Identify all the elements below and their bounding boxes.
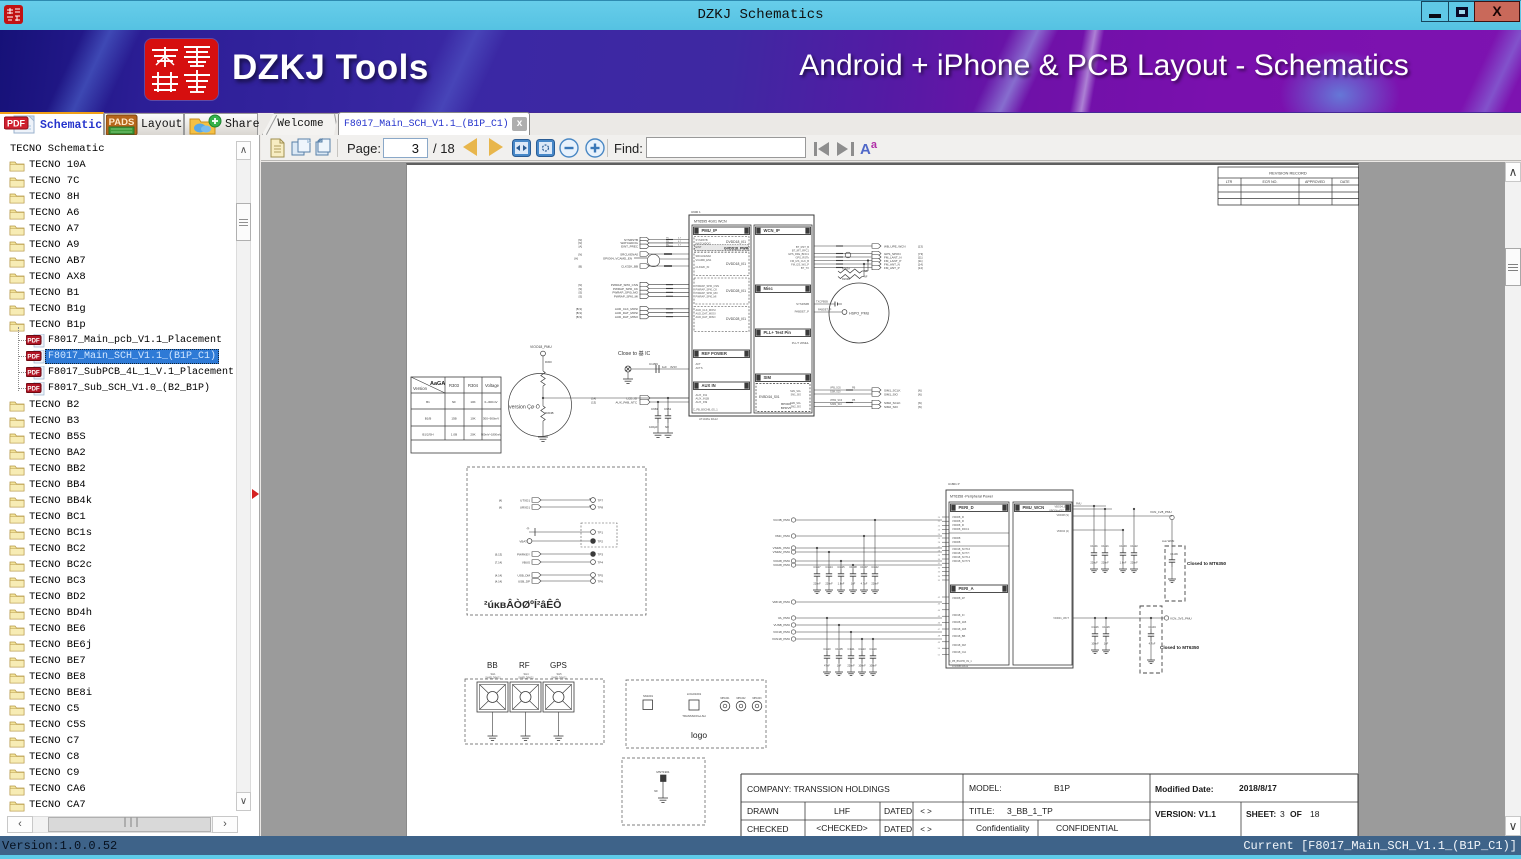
svg-text:2018/8/17: 2018/8/17 [1239,783,1277,793]
svg-text:Close to 基 IC: Close to 基 IC [618,349,651,357]
svg-text:PMU_IP: PMU_IP [702,228,718,233]
svg-text:C1121: C1121 [1101,544,1109,548]
svg-text:VCAMD_EN1: VCAMD_EN1 [696,258,712,262]
svg-text:VPB2_SC6: VPB2_SC6 [830,399,843,402]
svg-text:AUD_DAT_MISO: AUD_DAT_MISO [696,315,716,319]
svg-text:PADS: PADS [109,117,135,128]
svg-text:PDF: PDF [27,354,40,361]
svg-text:DATED: DATED [884,806,912,816]
svg-text:CLK32K_BB: CLK32K_BB [621,264,638,268]
svg-text:DVDD28_I01: DVDD28_I01 [726,289,746,293]
svg-text:900mV~1800mV: 900mV~1800mV [481,433,501,437]
svg-text:300~900mV: 300~900mV [483,417,499,421]
svg-text:[N]: [N] [918,405,922,409]
svg-text:CLK32K_IN: CLK32K_IN [696,265,710,269]
svg-text:version Çø·Ö: version Çø·Ö [509,404,540,411]
svg-text:50: 50 [938,648,941,650]
svg-text:VUSB_PMU: VUSB_PMU [773,623,790,627]
svg-text:C1105: C1105 [835,647,843,651]
svg-text:PERI_A: PERI_A [959,586,974,591]
svg-text:SM2_SIO: SM2_SIO [791,406,802,409]
svg-text:VCOB_PMU: VCOB_PMU [773,518,790,522]
svg-text:C1111: C1111 [847,647,855,651]
svg-text:30: 30 [938,559,941,561]
svg-text:DRAWN: DRAWN [747,806,779,816]
svg-text:B1P: B1P [1054,783,1070,793]
svg-text:SM1_SIO: SM1_SIO [791,394,802,397]
svg-text:R303: R303 [449,383,460,388]
svg-text:R263B: R263B [842,277,850,281]
svg-text:PB: PB [852,387,856,390]
svg-text:HSPO_PMU: HSPO_PMU [849,312,870,316]
svg-text:AUX IN: AUX IN [702,383,716,388]
svg-text:18: 18 [1310,809,1320,819]
svg-text:TP6: TP6 [598,579,604,583]
svg-text:Closed to MT6350: Closed to MT6350 [1160,645,1200,650]
svg-text:VPB_SC6: VPB_SC6 [830,387,841,390]
svg-text:TP3: TP3 [598,552,604,556]
svg-text:VDD08: VDD08 [952,536,961,540]
svg-text:AUD_CLK_MOSI: AUD_CLK_MOSI [696,308,716,312]
svg-text:DVDD18_I01: DVDD18_I01 [726,240,746,244]
svg-text:[7,14]: [7,14] [495,560,502,564]
svg-text:R304: R304 [468,383,479,388]
svg-text:APPROVED: APPROVED [1305,180,1325,184]
svg-text:PU: PU [666,238,669,240]
svg-text:NF: NF [665,425,669,429]
svg-text:VDD08: VDD08 [952,540,961,544]
svg-text:COMPANY: TRANSSION HOLDINGS: COMPANY: TRANSSION HOLDINGS [747,784,890,794]
svg-text:MP1003: MP1003 [753,697,763,700]
svg-text:MP1002: MP1002 [737,697,747,700]
svg-text:R300: R300 [545,360,552,364]
svg-text:VSIM2_PMU: VSIM2_PMU [773,550,790,554]
svg-text:PDF: PDF [27,386,40,393]
svg-text:GPIO04_VCAMD_EN: GPIO04_VCAMD_EN [603,256,632,260]
svg-text:VCN_3V3_PMU: VCN_3V3_PMU [1170,617,1192,621]
svg-text:[4,14]: [4,14] [495,573,502,577]
svg-text:GPS_RFE_BFIC1: GPS_RFE_BFIC1 [788,252,809,256]
svg-text:PWRKEY: PWRKEY [517,552,530,556]
svg-text:4.7uF: 4.7uF [1149,642,1156,646]
svg-text:MT6358 -Peripheral Power: MT6358 -Peripheral Power [950,495,994,499]
svg-text:VIOO18_PMU: VIOO18_PMU [530,345,552,349]
svg-text:28: 28 [938,551,941,553]
svg-text:VDD18_SOT14: VDD18_SOT14 [952,555,971,559]
svg-text:PERI_D: PERI_D [959,505,974,510]
svg-text:C_PB_BSCHB_0S_1: C_PB_BSCHB_0S_1 [949,660,972,663]
svg-text:B1: B1 [426,400,430,404]
svg-text:UTXD1: UTXD1 [520,498,530,502]
svg-text:[B]: [B] [579,264,583,268]
svg-text:0~300mV: 0~300mV [485,400,498,404]
svg-text:TP4: TP4 [598,560,604,564]
svg-text:VDD08_2P: VDD08_2P [952,596,965,600]
svg-text:32: 32 [938,567,941,569]
svg-text:PWRAP_SPI0_CK: PWRAP_SPI0_CK [696,288,718,292]
svg-text:TP7: TP7 [598,498,604,502]
svg-text:ECR NO.: ECR NO. [1263,180,1278,184]
svg-text:FM_I2S_WS_P: FM_I2S_WS_P [791,263,809,267]
svg-text:DATED: DATED [884,824,912,834]
svg-text:VBG04+X5Z_W5: VBG04+X5Z_W5 [1049,509,1070,513]
svg-text:C981: C981 [651,407,659,411]
svg-text:PWRAP_SPI0_MI: PWRAP_SPI0_MI [614,295,638,299]
svg-text:DATE: DATE [1340,180,1350,184]
svg-text:48: 48 [938,635,941,637]
svg-text:C1122: C1122 [1130,544,1138,548]
svg-text:46: 46 [938,623,941,625]
svg-text:VCN_1V8_PMU: VCN_1V8_PMU [1150,510,1172,514]
svg-text:REVISION RECORD: REVISION RECORD [1269,171,1307,176]
svg-text:Aux WCN: Aux WCN [1162,539,1174,543]
svg-text:VDD08_I6: VDD08_I6 [952,519,965,523]
svg-text:C1116: C1116 [1091,625,1099,629]
svg-text:20: 20 [938,517,941,519]
svg-text:REF POWER: REF POWER [702,351,727,356]
svg-text:[6,13]: [6,13] [495,552,502,556]
svg-text:15B: 15B [451,417,456,421]
svg-text:C1113: C1113 [858,647,866,651]
svg-text:SIM2_SIO: SIM2_SIO [884,405,899,409]
svg-text:WATCHDOG: WATCHDOG [696,242,711,246]
svg-text:SYSRSTB: SYSRSTB [696,238,708,242]
svg-text:44: 44 [938,610,941,612]
svg-text:VBUS: VBUS [522,560,530,564]
svg-text:MODEL:: MODEL: [969,783,1002,793]
svg-text:C1107: C1107 [860,565,868,569]
svg-text:AT1046s RA12: AT1046s RA12 [952,665,969,668]
svg-text:SH1: SH1 [490,672,496,676]
svg-text:26: 26 [938,542,941,544]
svg-text:TP1: TP1 [598,530,604,534]
svg-text:Closed to MT6350: Closed to MT6350 [1187,561,1227,566]
svg-text:VDD18_11B: VDD18_11B [952,627,966,631]
svg-text:R263A: R263A [842,267,850,271]
svg-text:PLL/T 26MHL: PLL/T 26MHL [792,341,810,345]
svg-text:EVBDI16_S01: EVBDI16_S01 [759,395,780,399]
svg-text:EINT: EINT [696,245,702,249]
svg-text:VDD01_WCT: VDD01_WCT [1053,616,1069,620]
svg-text:[13]: [13] [591,400,596,404]
svg-text:DVDD28_I01: DVDD28_I01 [726,317,746,321]
svg-text:SHIELDING1: SHIELDING1 [551,676,567,680]
svg-text:RF: RF [519,661,530,670]
svg-text:VDD08_I6: VDD08_I6 [952,515,965,519]
svg-text:GVDD18_PWR: GVDD18_PWR [724,246,749,250]
svg-text:Version: Version [413,386,428,391]
svg-text:MNT1901: MNT1901 [656,770,670,774]
svg-text:VDD18_DM: VDD18_DM [952,643,966,647]
svg-text:C1112: C1112 [871,565,879,569]
svg-text:VIO18_PMU: VIO18_PMU [773,630,790,634]
svg-text:U900 1: U900 1 [691,210,701,214]
svg-text:29: 29 [938,555,941,557]
svg-text:VDD08 (S): VDD08 (S) [1056,513,1069,517]
svg-text:USB_DM: USB_DM [517,573,530,577]
svg-text:10K: 10K [470,400,475,404]
svg-text:3: 3 [1280,809,1285,819]
svg-text:Confidentiality: Confidentiality [976,823,1030,833]
svg-text:3_BB_1_TP: 3_BB_1_TP [1007,806,1053,816]
svg-text:NF: NF [864,275,868,279]
svg-text:VRF18_PMU: VRF18_PMU [772,600,790,604]
svg-text:TITLE:: TITLE: [969,806,995,816]
svg-text:[4,14]: [4,14] [495,579,502,583]
svg-text:VDD18_SOT73: VDD18_SOT73 [952,559,971,563]
svg-text:VDD18_SOT16: VDD18_SOT16 [952,547,971,551]
svg-text:Voltage: Voltage [485,383,500,388]
svg-text:C1115: C1115 [837,565,845,569]
svg-text:[S]: [S] [579,295,583,299]
svg-text:C1104: C1104 [1148,625,1156,629]
svg-text:SYSRS6B: SYSRS6B [796,302,809,306]
svg-text:21: 21 [938,521,941,523]
svg-text:[13]: [13] [918,244,923,248]
svg-text:C1117: C1117 [813,565,821,569]
svg-text:EINT_PREC: EINT_PREC [621,245,639,249]
svg-text:SIM: SIM [764,375,772,380]
svg-text:C961: C961 [664,407,672,411]
svg-text:C1126: C1126 [1102,625,1110,629]
svg-text:SH5: SH5 [556,672,562,676]
svg-text:USB_DP: USB_DP [518,579,530,583]
svg-text:35: 35 [938,580,941,582]
svg-text:VBAT: VBAT [519,539,527,543]
svg-text:< >: < > [920,807,932,816]
svg-text:WB_UPE_WCN: WB_UPE_WCN [884,244,906,248]
svg-text:1.0B: 1.0B [451,433,457,437]
svg-text:logo: logo [691,730,707,740]
svg-text:C1119: C1119 [869,647,877,651]
svg-text:C1399: C1399 [649,362,658,366]
svg-text:VDD18_CIA: VDD18_CIA [952,650,966,654]
svg-text:PDF: PDF [7,119,26,129]
svg-text:23: 23 [938,530,941,532]
svg-text:²úĸвÂÒØºÍ²âÊÔ: ²úĸвÂÒØºÍ²âÊÔ [484,598,561,611]
svg-text:TRANSSION+LSH: TRANSSION+LSH [682,714,705,718]
svg-text:BT_RST_B: BT_RST_B [796,245,809,249]
svg-text:LTR: LTR [1226,180,1233,184]
svg-text:C1110: C1110 [823,647,831,651]
svg-text:[4]: [4] [499,498,502,502]
svg-text:MP1001: MP1001 [721,697,731,700]
svg-text:VDD04 (2): VDD04 (2) [1057,529,1069,533]
svg-text:[B,S]: [B,S] [576,315,582,319]
svg-text:PDF: PDF [27,370,40,377]
svg-text:[N]: [N] [918,392,922,396]
svg-text:<CHECKED>: <CHECKED> [816,823,868,833]
svg-text:[N]: [N] [578,252,582,256]
svg-text:AUD_DAT_MOSI: AUD_DAT_MOSI [696,312,716,316]
svg-text:PU: PU [666,241,669,243]
svg-text:VDD08_I6DC1: VDD08_I6DC1 [952,527,970,531]
svg-text:20K: 20K [470,433,475,437]
svg-text:B1/B: B1/B [425,417,432,421]
svg-text:TP5: TP5 [598,573,604,577]
svg-text:VDD18_SOT7I: VDD18_SOT7I [952,551,970,555]
svg-text:SIM1_SIO: SIM1_SIO [884,392,899,396]
svg-text:S3M2_S10: S3M2_S10 [830,403,842,406]
svg-text:VDD18_IO: VDD18_IO [952,613,965,617]
svg-text:[14]: [14] [918,266,923,270]
svg-text:R304B: R304B [545,411,554,415]
svg-text:51: 51 [938,655,941,657]
svg-text:PWRAP_SPI0_MO: PWRAP_SPI0_MO [696,291,718,295]
svg-text:-||-: -||- [526,526,530,530]
svg-text:B1/2/SH: B1/2/SH [422,433,433,437]
svg-text:10K: 10K [470,417,475,421]
svg-text:SRCLKENA0: SRCLKENA0 [696,254,712,258]
svg-text:C1103: C1103 [1119,544,1127,548]
svg-text:FM_ANT_P: FM_ANT_P [884,266,900,270]
svg-text:URXD1: URXD1 [520,505,531,509]
svg-text:24: 24 [938,534,941,536]
svg-text:AUD_DAT_MISO: AUD_DAT_MISO [615,315,639,319]
svg-text:SHEET:: SHEET: [1246,809,1276,819]
svg-text:LHF: LHF [834,806,850,816]
svg-text:VMC_PMU: VMC_PMU [775,534,790,538]
svg-text:C_PB_BSCHB_0S_1: C_PB_BSCHB_0S_1 [693,408,718,412]
svg-text:AaGA: AaGA [430,381,445,387]
svg-text:C1109: C1109 [1170,552,1178,556]
svg-text:[4]: [4] [499,505,502,509]
svg-text:Misc: Misc [764,286,774,291]
svg-text:TXCPB5B: TXCPB5B [816,300,828,304]
svg-text:AUX_PAB_NTC: AUX_PAB_NTC [616,400,638,404]
svg-text:4V3V: 4V3V [670,365,677,369]
svg-text:33: 33 [938,572,941,574]
svg-text:BT_TX: BT_TX [801,266,809,270]
svg-text:< >: < > [920,825,932,834]
svg-text:PU: PU [666,245,669,247]
svg-text:Modified Date:: Modified Date: [1155,784,1214,794]
svg-text:TP2: TP2 [598,539,604,543]
svg-text:MT6595 4G01 WCN: MT6595 4G01 WCN [694,220,727,224]
svg-text:TP8: TP8 [598,505,604,509]
svg-text:SN1001: SN1001 [643,694,654,698]
svg-text:[H]: [H] [574,256,578,260]
svg-text:GPS: GPS [550,661,567,670]
svg-text:PLL+ Test Pin: PLL+ Test Pin [764,330,792,335]
svg-text:[A]: [A] [579,245,583,249]
svg-text:47: 47 [938,629,941,631]
svg-text:100pF: 100pF [649,425,658,429]
svg-text:BT_IRT_RFC1: BT_IRT_RFC1 [792,249,810,253]
svg-text:PDF: PDF [27,338,40,345]
svg-text:CONFIDENTIAL: CONFIDENTIAL [1056,823,1119,833]
svg-text:VDD08_I6: VDD08_I6 [952,523,965,527]
svg-text:LOGO1001: LOGO1001 [687,692,702,696]
svg-text:VCN18_PMU: VCN18_PMU [772,637,790,641]
svg-text:DVDD18_I01: DVDD18_I01 [726,262,746,266]
svg-text:C1101: C1101 [1090,544,1098,548]
svg-text:VIO28_PMU: VIO28_PMU [773,563,790,567]
svg-text:VDD18_BB: VDD18_BB [952,634,966,638]
svg-text:34: 34 [938,576,941,578]
svg-text:PWRAP_SPI0_CSN: PWRAP_SPI0_CSN [696,284,720,288]
svg-text:PB: PB [852,399,856,402]
svg-text:1uF: 1uF [662,365,667,369]
svg-text:PABDET_P: PABDET_P [795,310,810,314]
svg-text:AVTS: AVTS [696,366,703,370]
svg-text:FM_I2S_CLK_B: FM_I2S_CLK_B [790,259,809,263]
svg-text:VERSION: V1.1: VERSION: V1.1 [1155,809,1216,819]
svg-text:AUX_IN9: AUX_IN9 [696,400,708,404]
svg-text:CHECKED: CHECKED [747,824,789,834]
svg-text:SH4: SH4 [523,672,529,676]
svg-text:NF: NF [452,400,456,404]
svg-text:BB: BB [487,661,498,670]
svg-text:PMU: PMU [1076,503,1082,506]
svg-text:43: 43 [938,603,941,605]
svg-text:VDD28_11B: VDD28_11B [952,620,966,624]
svg-text:VA_PMU: VA_PMU [778,616,790,620]
svg-text:49: 49 [938,642,941,644]
svg-text:42: 42 [938,597,941,599]
svg-text:AT1046s RA12: AT1046s RA12 [699,417,718,421]
svg-text:NF: NF [654,789,658,793]
svg-text:22: 22 [938,525,941,527]
svg-text:S3M_S10: S3M_S10 [830,391,841,394]
svg-text:C1114: C1114 [825,565,833,569]
svg-text:PWRAP_SPI0_MI: PWRAP_SPI0_MI [696,295,717,299]
svg-text:U1801 P: U1801 P [948,482,960,486]
svg-text:C1108: C1108 [849,565,857,569]
svg-text:PMU_WCN: PMU_WCN [1023,505,1045,510]
svg-text:WCN_IP: WCN_IP [764,228,780,233]
svg-text:25: 25 [938,538,941,540]
svg-text:VBG04_B5T: VBG04_B5T [1054,505,1069,509]
svg-text:GPS_RSTb: GPS_RSTb [795,256,809,260]
svg-text:OF: OF [1290,809,1302,819]
